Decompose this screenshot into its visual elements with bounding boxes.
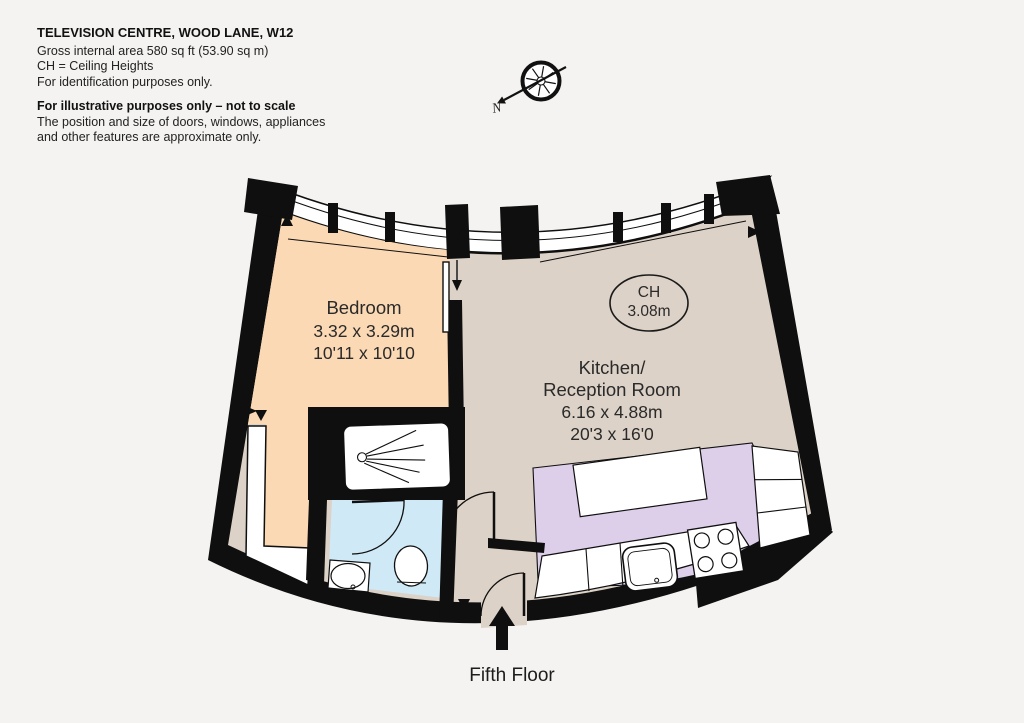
- hob-icon: [688, 522, 744, 578]
- kitchen-reception-size-imperial: 20'3 x 16'0: [570, 424, 654, 444]
- bathroom-left-wall: [306, 500, 327, 584]
- shower-tray: [343, 422, 451, 491]
- compass-icon: N: [490, 63, 566, 118]
- floor-label: Fifth Floor: [0, 665, 1024, 687]
- kitchen-reception-size-metric: 6.16 x 4.88m: [561, 402, 662, 422]
- bedroom-label: Bedroom: [326, 297, 401, 318]
- ch-label: CH: [638, 284, 660, 301]
- kitchen-reception-label-line2: Reception Room: [543, 379, 681, 400]
- sink-icon: [328, 560, 370, 592]
- bedroom-size-metric: 3.32 x 3.29m: [313, 321, 414, 341]
- ch-value: 3.08m: [627, 303, 670, 320]
- column: [500, 205, 540, 260]
- bedroom-size-imperial: 10'11 x 10'10: [313, 343, 415, 363]
- kitchen-reception-label-line1: Kitchen/: [579, 357, 647, 378]
- wall-corner-left: [244, 178, 298, 220]
- floorplan-page: TELEVISION CENTRE, WOOD LANE, W12 Gross …: [0, 0, 1024, 723]
- floor-plan-svg: CH 3.08m Bedroom 3.32 x 3.29m 10'11 x 10…: [0, 0, 1024, 723]
- wall-corner-right: [716, 175, 780, 216]
- divider-wall-top: [445, 204, 470, 259]
- sink-unit-icon: [622, 542, 679, 592]
